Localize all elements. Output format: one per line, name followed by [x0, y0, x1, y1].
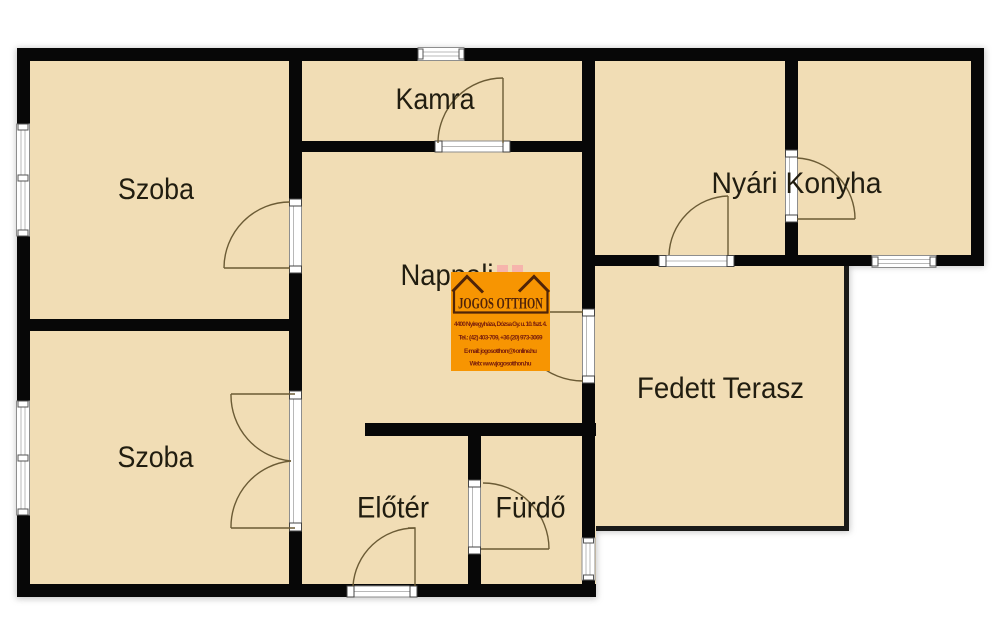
svg-text:Fedett Terasz: Fedett Terasz: [637, 372, 804, 405]
svg-text:Tel.: (42) 403-709, +36 (20): Tel.: (42) 403-709, +36 (20) 973-3069: [459, 335, 543, 342]
svg-text:Előtér: Előtér: [357, 492, 429, 525]
svg-text:E-mail: jogosotthon@t-online.: E-mail: jogosotthon@t-online.hu: [464, 348, 537, 355]
svg-text:Nyári Konyha: Nyári Konyha: [712, 167, 882, 200]
svg-text:4400 Nyíregyháza, Dózsa Gy. u.: 4400 Nyíregyháza, Dózsa Gy. u. 10. fszt.…: [454, 321, 547, 328]
svg-text:Fürdő: Fürdő: [496, 492, 566, 525]
svg-text:Szoba: Szoba: [118, 173, 194, 206]
svg-text:Szoba: Szoba: [118, 441, 194, 474]
svg-text:Kamra: Kamra: [396, 83, 475, 116]
svg-text:Web: www.jogosotthon.hu: Web: www.jogosotthon.hu: [470, 361, 532, 368]
svg-text:JOGOS OTTHON: JOGOS OTTHON: [458, 294, 543, 312]
